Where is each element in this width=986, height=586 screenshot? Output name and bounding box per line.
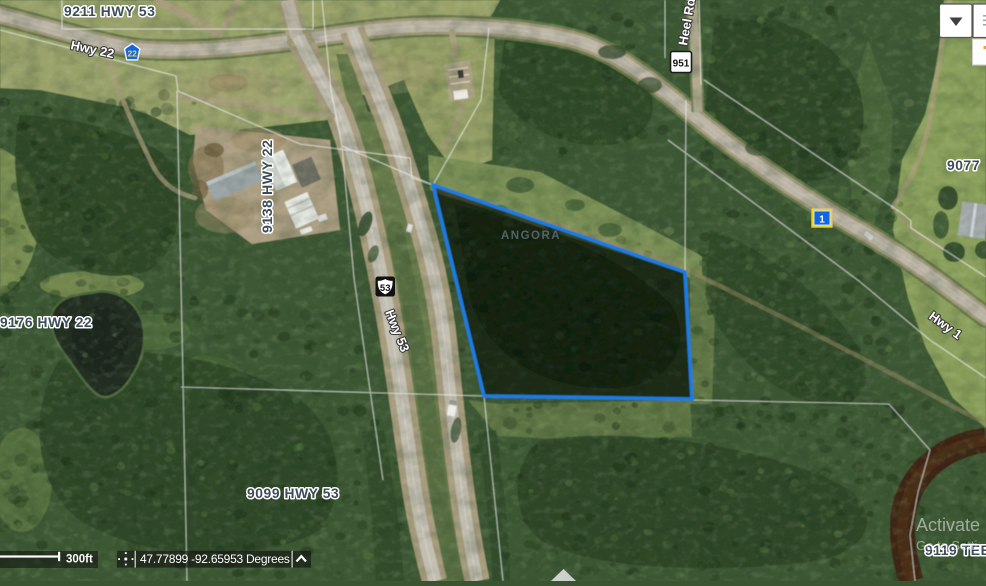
svg-text:951: 951 — [673, 59, 690, 70]
svg-text:Go to Setti: Go to Setti — [916, 538, 978, 553]
svg-text:22: 22 — [127, 49, 137, 59]
svg-text:9176 HWY 22: 9176 HWY 22 — [0, 315, 92, 330]
svg-text:300ft: 300ft — [66, 554, 93, 566]
svg-text:1: 1 — [819, 215, 825, 226]
svg-text:53: 53 — [380, 283, 391, 294]
svg-text:9099 HWY 53: 9099 HWY 53 — [247, 486, 339, 501]
svg-text:47.77899 -92.65953 Degrees: 47.77899 -92.65953 Degrees — [140, 552, 290, 566]
svg-text:9211 HWY 53: 9211 HWY 53 — [64, 4, 155, 19]
svg-text:9077: 9077 — [947, 158, 980, 173]
svg-text:Activate: Activate — [916, 515, 980, 535]
svg-text:ANGORA: ANGORA — [501, 230, 561, 242]
svg-text:9138 HWY 22: 9138 HWY 22 — [260, 139, 276, 233]
